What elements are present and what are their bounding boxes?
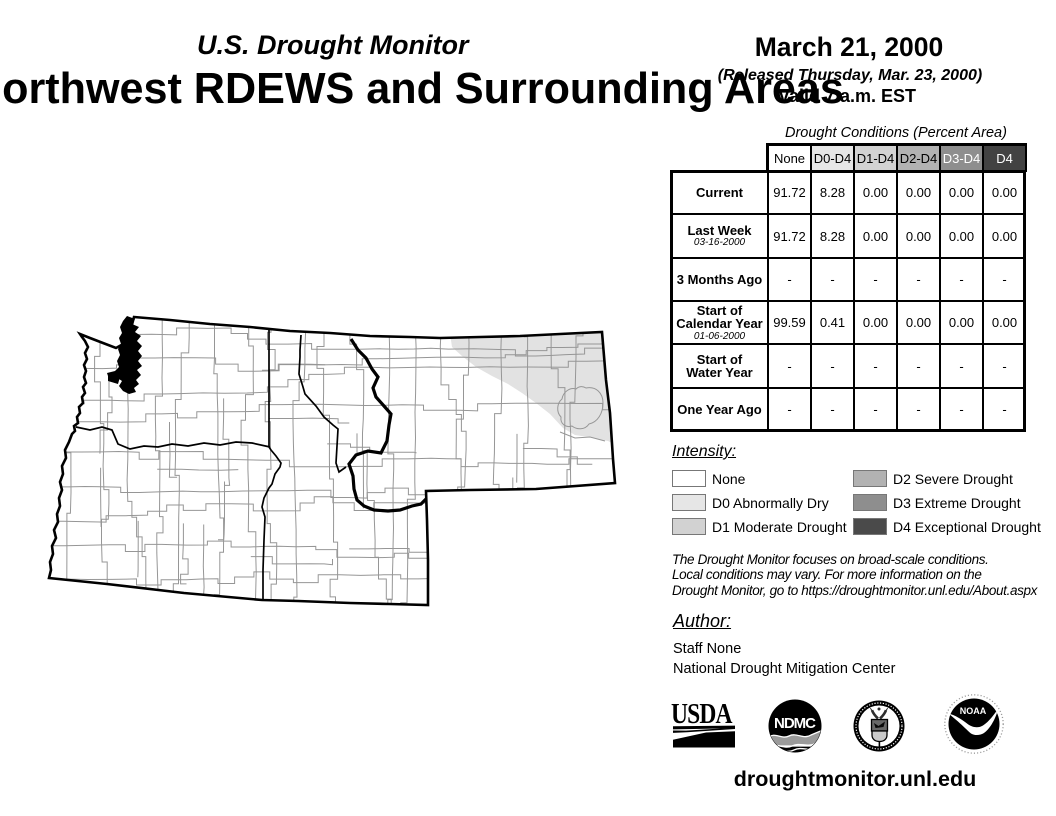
svg-text:NOAA: NOAA	[960, 706, 987, 716]
svg-text:NDMC: NDMC	[774, 715, 816, 732]
svg-text:USDA: USDA	[671, 698, 733, 729]
